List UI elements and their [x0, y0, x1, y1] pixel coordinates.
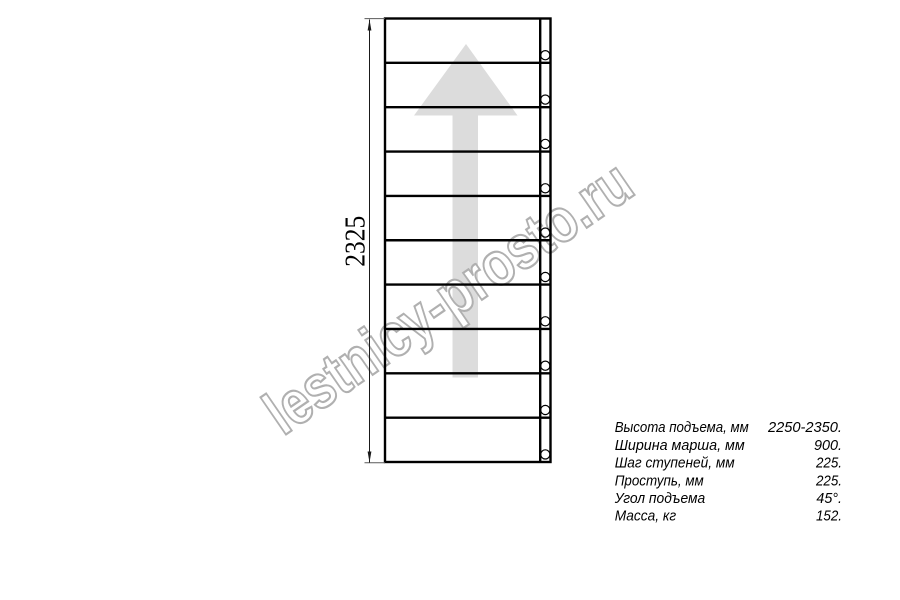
- svg-text:225.: 225.: [815, 455, 842, 472]
- svg-text:45°.: 45°.: [816, 490, 842, 507]
- svg-text:Высота подъема, мм: Высота подъема, мм: [615, 419, 749, 436]
- svg-text:Угол подъема: Угол подъема: [614, 490, 705, 507]
- svg-text:Шаг ступеней, мм: Шаг ступеней, мм: [615, 455, 735, 472]
- svg-text:Ширина марша, мм: Ширина марша, мм: [615, 437, 745, 454]
- svg-text:2250-2350.: 2250-2350.: [767, 419, 842, 436]
- svg-text:Масса, кг: Масса, кг: [615, 507, 677, 524]
- svg-text:2325: 2325: [341, 216, 372, 267]
- svg-text:900.: 900.: [814, 437, 842, 454]
- svg-text:Проступь, мм: Проступь, мм: [615, 472, 704, 489]
- svg-text:152.: 152.: [816, 507, 842, 524]
- svg-text:225.: 225.: [815, 472, 842, 489]
